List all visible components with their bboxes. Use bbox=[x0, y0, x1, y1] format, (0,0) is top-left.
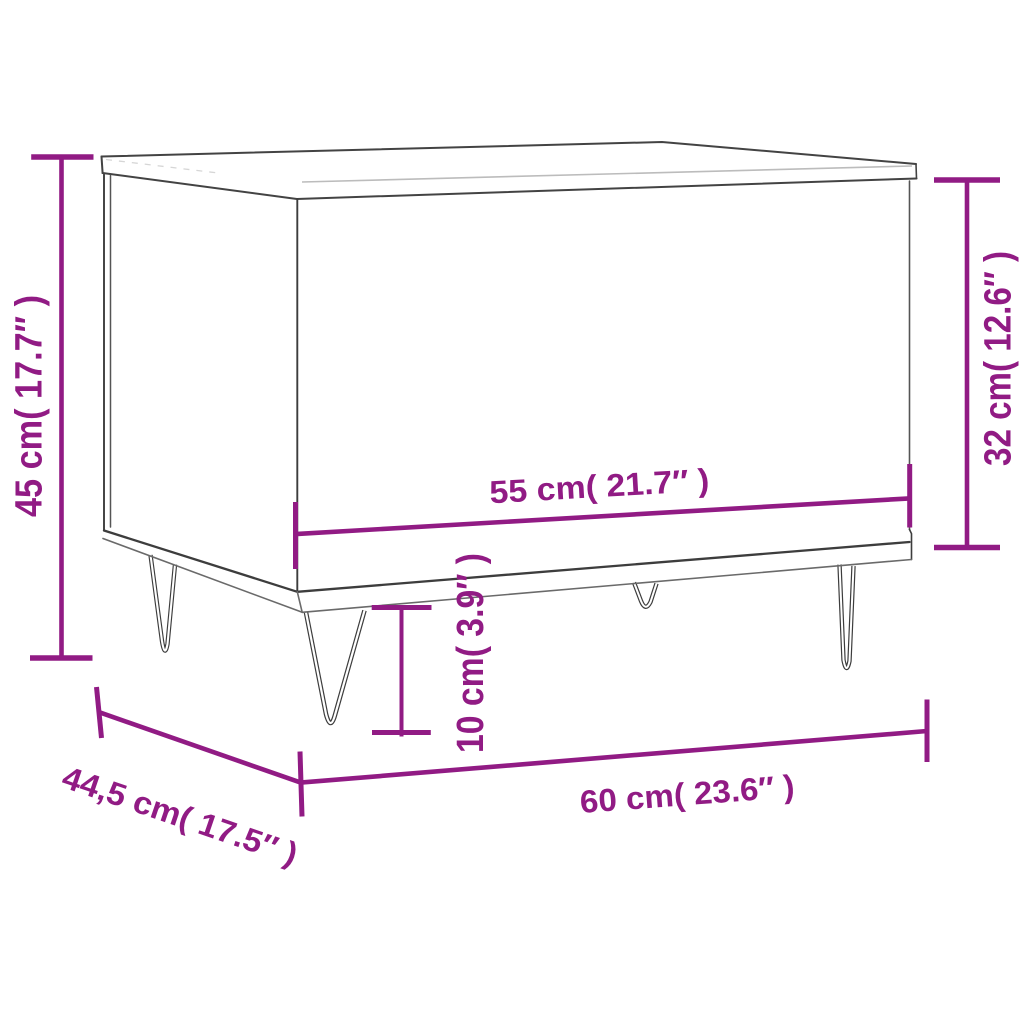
svg-text:10 cm( 3.9″ ): 10 cm( 3.9″ ) bbox=[450, 553, 492, 753]
svg-text:32 cm( 12.6″ ): 32 cm( 12.6″ ) bbox=[978, 251, 1020, 466]
svg-text:60 cm( 23.6″ ): 60 cm( 23.6″ ) bbox=[579, 768, 796, 820]
svg-text:55 cm( 21.7″ ): 55 cm( 21.7″ ) bbox=[489, 462, 711, 511]
svg-text:44,5 cm( 17.5″ ): 44,5 cm( 17.5″ ) bbox=[58, 759, 302, 872]
svg-text:45 cm( 17.7″ ): 45 cm( 17.7″ ) bbox=[9, 295, 51, 517]
